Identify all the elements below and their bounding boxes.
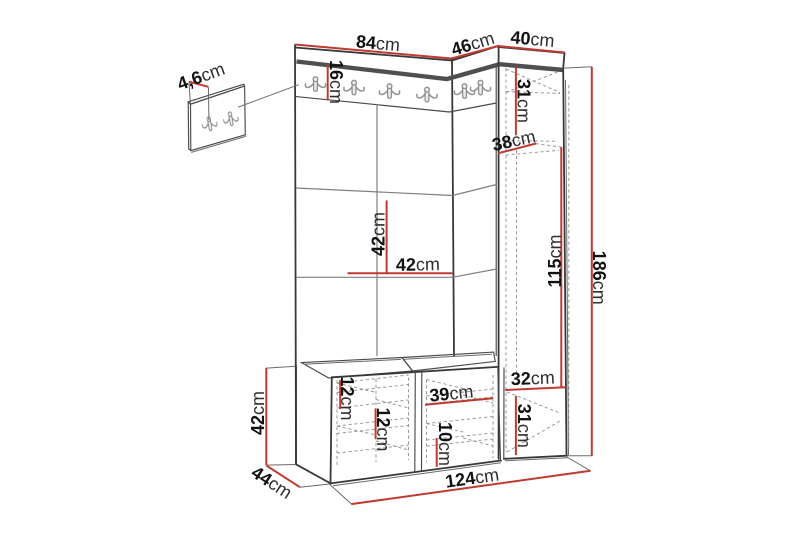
svg-text:42cm: 42cm xyxy=(248,391,268,435)
svg-text:42cm: 42cm xyxy=(396,254,440,275)
svg-text:46cm: 46cm xyxy=(449,28,497,60)
svg-text:10cm: 10cm xyxy=(435,422,455,466)
svg-text:4,6cm: 4,6cm xyxy=(174,59,227,95)
svg-text:38cm: 38cm xyxy=(490,126,537,155)
svg-text:42cm: 42cm xyxy=(369,212,389,256)
svg-text:186cm: 186cm xyxy=(589,251,609,305)
svg-text:40cm: 40cm xyxy=(510,27,556,51)
svg-text:16cm: 16cm xyxy=(326,60,346,104)
svg-text:31cm: 31cm xyxy=(514,79,534,123)
svg-text:84cm: 84cm xyxy=(355,31,401,55)
svg-text:12cm: 12cm xyxy=(337,376,357,420)
svg-text:12cm: 12cm xyxy=(373,407,393,451)
svg-text:32cm: 32cm xyxy=(510,368,555,390)
svg-text:115cm: 115cm xyxy=(545,234,565,287)
svg-text:124cm: 124cm xyxy=(444,464,500,491)
svg-text:39cm: 39cm xyxy=(428,381,474,405)
svg-text:31cm: 31cm xyxy=(514,404,534,448)
